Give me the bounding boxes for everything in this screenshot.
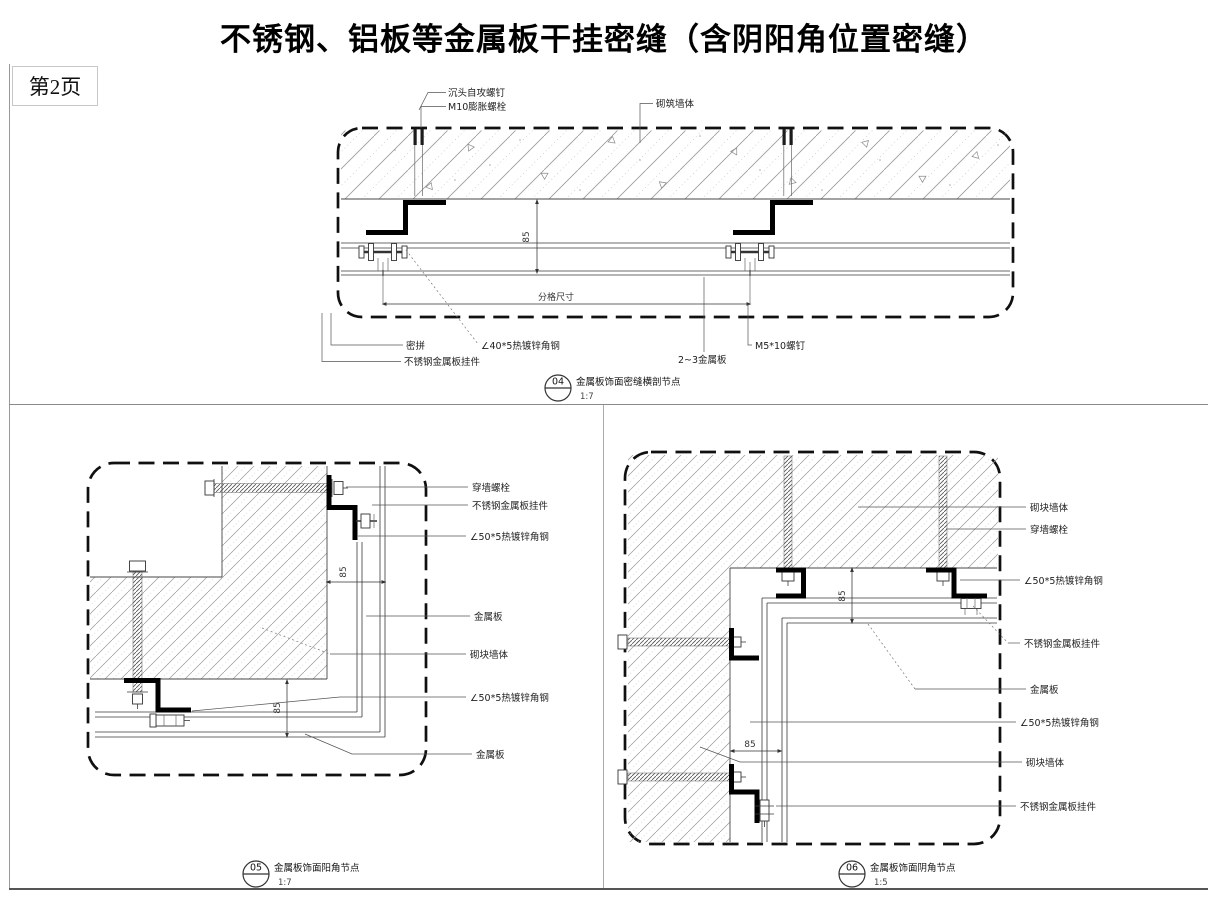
detail-name: 金属板饰面阳角节点 [274,862,360,874]
label-galvanized-angle: ∠50*5热镀锌角钢 [470,692,549,704]
detail-number: 06 [846,863,858,874]
leader-line [331,313,403,345]
masonry-wall-hatch [341,131,1010,200]
dimension-85-label: 85 [522,231,532,242]
dimension-85-side: 85 [328,566,384,582]
label-metal-panel: 金属板 [1030,684,1059,696]
dimension-85-label: 85 [838,590,848,601]
label-metal-panel: 金属板 [474,611,503,623]
leader-line [868,624,915,689]
dimension-85-label: 85 [744,740,755,750]
steel-angle-bracket [733,203,813,233]
label-block-wall: 砌块墙体 [470,649,509,661]
leader-line [421,107,446,129]
detail-06-title-bubble: 06 金属板饰面阴角节点 1:5 [839,861,956,888]
frame-line-left [9,64,10,890]
label-galvanized-angle: ∠50*5热镀锌角钢 [1020,717,1099,729]
metal-panel-lines [762,598,997,842]
dimension-85-label: 85 [273,702,283,713]
steel-angle-bracket [926,570,987,596]
label-panel-hanger: 不锈钢金属板挂件 [1020,801,1097,813]
leader-line [322,313,401,362]
label-panel-hanger: 不锈钢金属板挂件 [1024,638,1101,650]
page-number-label: 第2页 [29,71,82,101]
leader-line [748,304,752,345]
label-through-wall-bolt: 穿墙螺栓 [1030,524,1069,536]
detail-scale: 1:7 [580,392,594,402]
detail-number: 05 [250,863,262,874]
drawing-sheet: 不锈钢、铝板等金属板干挂密缝（含阴阳角位置密缝） 第2页 [0,0,1208,906]
steel-angle-bracket [366,203,446,233]
dimension-85-bottom: 85 [732,740,780,751]
label-galvanized-angle: ∠40*5热镀锌角钢 [481,340,560,352]
detail-name: 金属板饰面阴角节点 [870,862,956,874]
detail-scale: 1:5 [874,878,888,888]
detail-05-title-bubble: 05 金属板饰面阳角节点 1:7 [243,861,360,888]
detail-scale: 1:7 [278,878,292,888]
label-block-wall: 砌块墙体 [1030,502,1069,514]
panel-bolt-hardware [961,598,981,615]
detail-name: 金属板饰面密缝横剖节点 [576,376,681,388]
label-galvanized-angle: ∠50*5热镀锌角钢 [470,531,549,543]
leader-line [973,606,1008,643]
metal-panel-face [341,270,1010,276]
dimension-grid-label: 分格尺寸 [538,291,574,303]
detail-number: 04 [552,377,564,388]
frame-line-vertical-divider [603,405,604,889]
leader-line [406,250,478,344]
label-through-wall-bolt: 穿墙螺栓 [472,482,511,494]
panel-bolt-hardware [150,714,190,727]
label-metal-panel: 2~3金属板 [678,354,727,366]
label-galvanized-angle: ∠50*5热镀锌角钢 [1024,575,1103,587]
label-masonry-wall: 砌筑墙体 [656,98,695,110]
panel-bolt-hardware [356,514,377,528]
block-wall-hatch [90,466,327,679]
detail-06-drawing: 85 85 砌块墙体 穿墙螺栓 ∠50*5热镀锌角钢 不锈钢金属板挂件 金属板 … [608,445,1208,900]
label-panel-hanger: 不锈钢金属板挂件 [404,356,481,368]
dimension-85-top: 85 [838,570,852,622]
sheet-title: 不锈钢、铝板等金属板干挂密缝（含阴阳角位置密缝） [0,14,1208,59]
dimension-85-label: 85 [339,566,349,577]
angle-steel-rails [341,243,1010,248]
detail-05-drawing: 85 85 穿墙螺栓 不锈钢金属板挂件 ∠50*5热镀锌角钢 金属板 砌块墙体 … [70,450,575,895]
detail-04-title-bubble: 04 金属板饰面密缝横剖节点 1:7 [545,375,681,402]
label-block-wall: 砌块墙体 [1026,757,1065,769]
dimension-85-bottom: 85 [273,682,287,736]
leader-line [419,93,446,111]
page-number-box: 第2页 [12,66,98,106]
label-expansion-bolt: M10膨胀螺栓 [448,101,507,113]
label-tight-seam: 密拼 [406,340,426,352]
label-metal-panel: 金属板 [476,749,505,761]
dimension-grid: 分格尺寸 [383,262,750,304]
label-m5-bolt: M5*10螺钉 [755,341,806,352]
detail-04-drawing: 85 分格尺寸 沉头自攻螺钉 M10膨胀螺栓 砌筑墙体 密拼 ∠40*5热镀锌角… [300,80,1040,410]
label-self-tapping-screw: 沉头自攻螺钉 [448,87,506,99]
dimension-85: 85 [522,202,537,272]
label-panel-hanger: 不锈钢金属板挂件 [472,500,549,512]
